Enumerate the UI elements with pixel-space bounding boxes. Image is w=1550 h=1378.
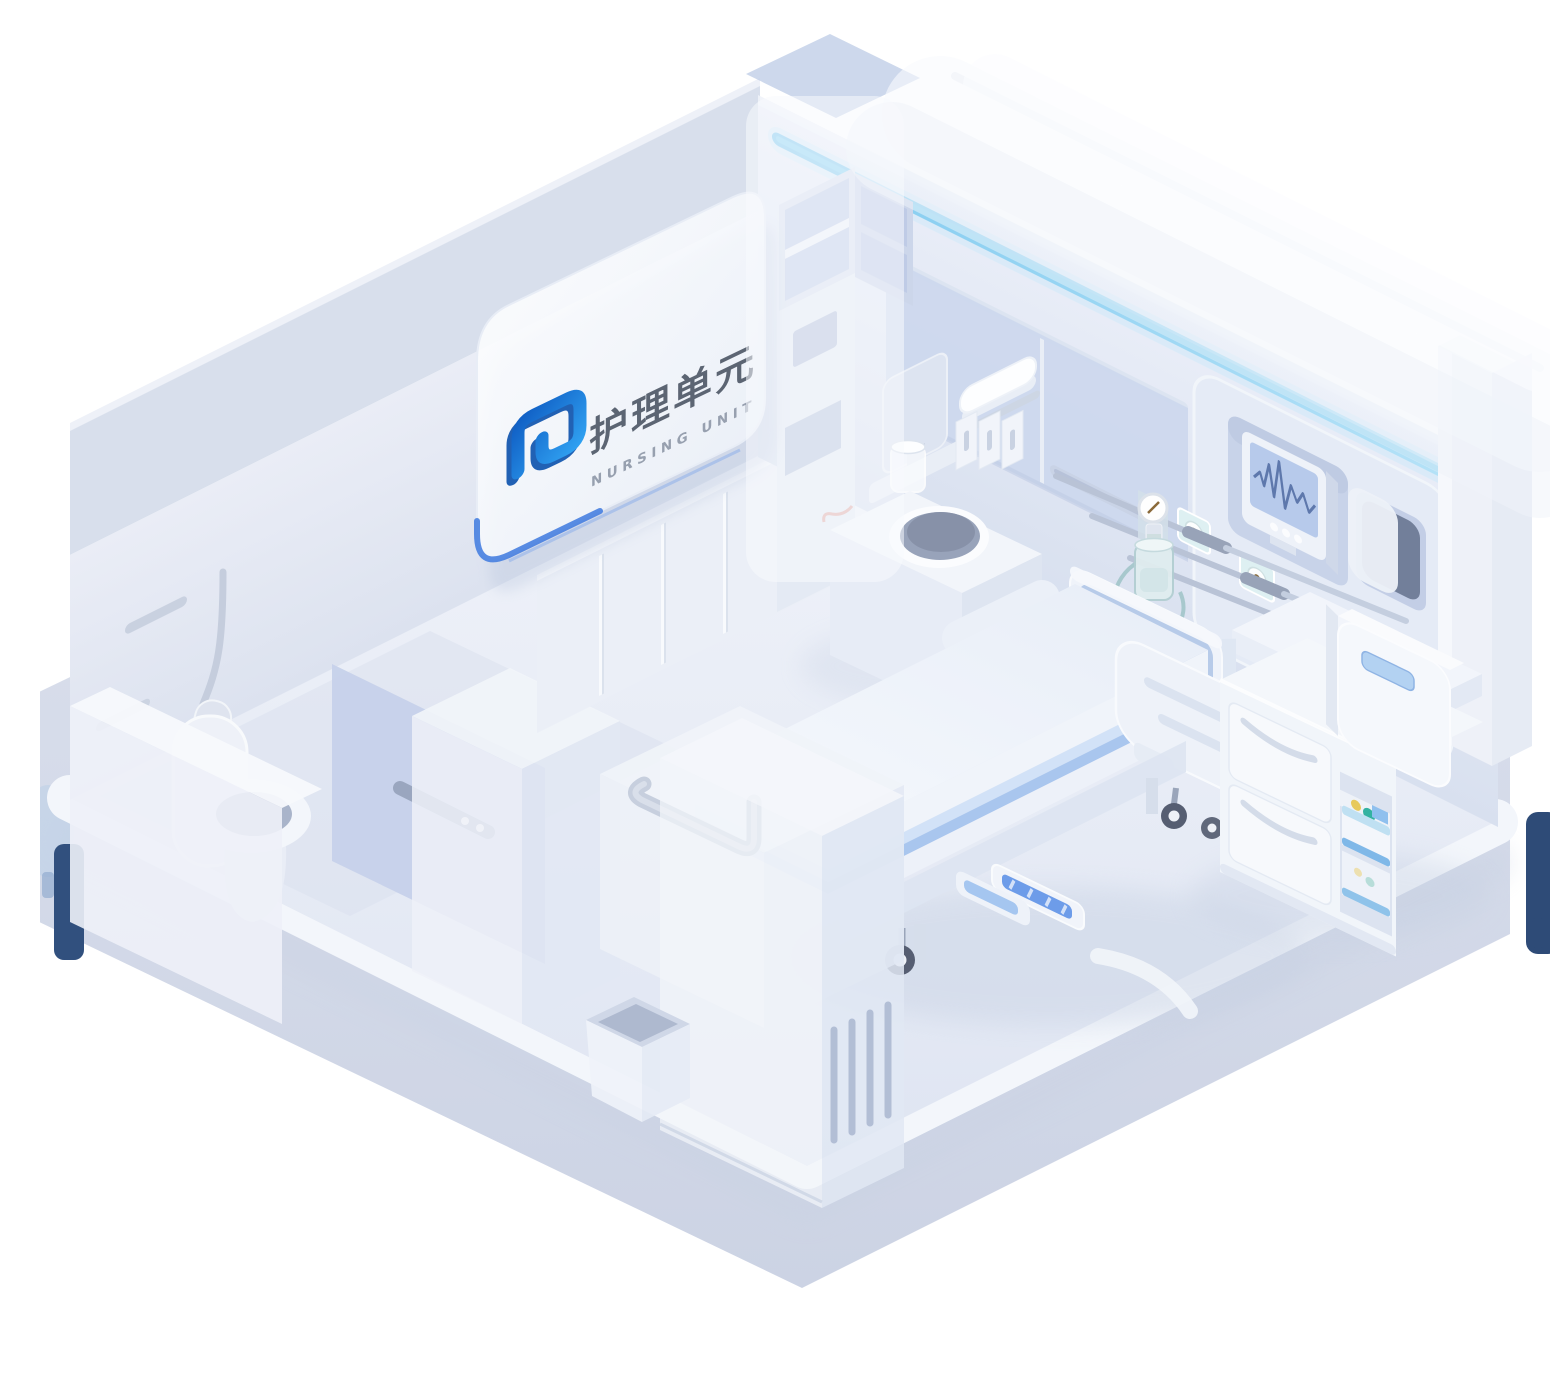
wardrobe-front — [660, 758, 822, 1208]
monitor-side — [1326, 471, 1338, 575]
wardrobe-side — [822, 796, 904, 1208]
bed-leg — [1146, 778, 1158, 814]
nursing-unit-room-illustration: 护理单元 NURSING UNIT — [40, 16, 1550, 1362]
mid-cabinet-block — [412, 668, 620, 1024]
navy-tick-right — [1532, 918, 1544, 948]
curtain-fold-left — [746, 96, 904, 582]
isometric-scene: 护理单元 NURSING UNIT — [40, 16, 1550, 1362]
wardrobe-column — [660, 718, 904, 1208]
block-left — [412, 716, 522, 1024]
bottle-top — [1135, 539, 1173, 552]
fridge-side — [1326, 604, 1338, 736]
caster-hub — [1208, 824, 1217, 833]
paint-tick-left — [42, 872, 54, 898]
basin-inner — [907, 512, 975, 552]
caster-stem — [1174, 788, 1176, 804]
bottle-water — [1140, 568, 1168, 592]
caster-hub — [1169, 811, 1180, 822]
bed-leg — [914, 924, 926, 960]
